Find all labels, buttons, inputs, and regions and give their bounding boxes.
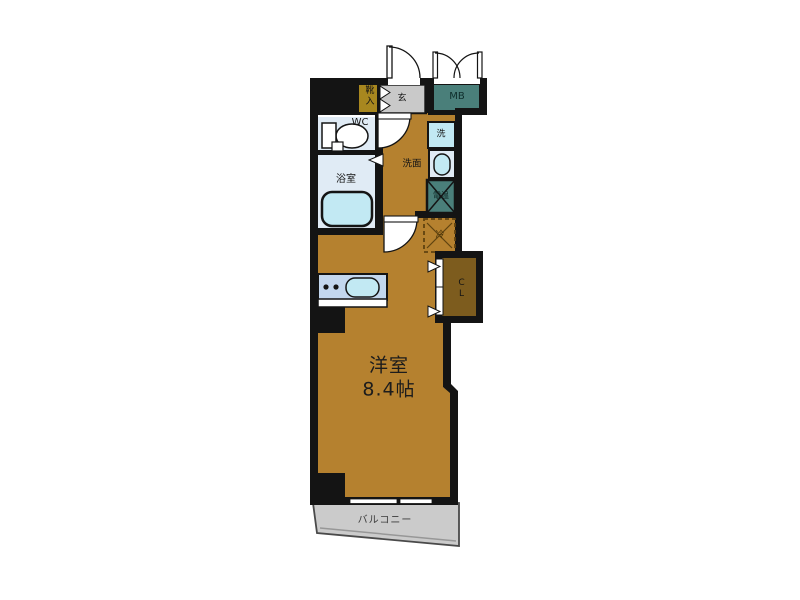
closet-label: CL xyxy=(457,278,466,300)
bathroom-label: 浴室 xyxy=(336,175,356,185)
washbasin-sink-icon xyxy=(434,154,450,175)
main-room-door-leaf xyxy=(384,216,418,222)
wall-top-left-block xyxy=(310,78,358,115)
balcony-windows xyxy=(350,499,432,504)
main-room-label: 洋室 8.4帖 xyxy=(362,354,415,402)
kitchen-counter-front xyxy=(318,299,387,307)
wall-bath-bottom xyxy=(310,228,383,235)
kitchen xyxy=(318,274,387,307)
main-room-name: 洋室 xyxy=(362,354,415,378)
stove-burner-icon xyxy=(323,284,328,289)
closet xyxy=(428,251,483,323)
washroom-label: 洗面 xyxy=(402,159,421,169)
meter-box-door-opening xyxy=(434,78,480,84)
wc-label: WC xyxy=(352,118,369,128)
meter-box-door-leaf xyxy=(478,52,483,78)
exterior-doors xyxy=(387,46,482,85)
window-opening xyxy=(350,499,397,504)
meter-box-door-leaf xyxy=(433,52,438,78)
entrance-label: 玄 xyxy=(397,95,406,104)
floorplan-page: 靴入 玄 MB WC 浴室 洗 洗面 電温 冷 CL 洋室 8.4帖 バルコニー xyxy=(0,0,800,600)
shoe-cabinet-label: 靴入 xyxy=(364,85,373,107)
bathroom xyxy=(318,154,383,228)
kitchen-sink-icon xyxy=(346,278,379,297)
wall-bottom-left-pillar xyxy=(314,473,345,499)
wall-left xyxy=(310,115,318,505)
stove-burner-icon xyxy=(333,284,338,289)
washing-machine-label: 洗 xyxy=(436,131,445,140)
wall-entrance-right xyxy=(425,78,434,113)
water-heater-label: 電温 xyxy=(433,192,449,200)
toilet-seat-icon xyxy=(332,142,343,151)
entrance-door-opening xyxy=(388,78,420,85)
window-opening xyxy=(400,499,432,504)
meter-box-door-swing-icon xyxy=(435,53,460,78)
entrance-door-swing-icon xyxy=(389,47,420,78)
washroom-door-leaf xyxy=(378,113,411,119)
meter-box-label: MB xyxy=(449,92,465,102)
main-room-size: 8.4帖 xyxy=(362,378,415,402)
floorplan-drawing xyxy=(0,0,800,600)
entrance-door-leaf xyxy=(387,46,392,78)
meter-box-door-swing-icon xyxy=(454,53,479,78)
balcony-label: バルコニー xyxy=(358,516,413,526)
refrigerator-label: 冷 xyxy=(435,232,444,241)
bathtub-icon xyxy=(322,192,372,226)
wall-wc-bath-divider xyxy=(318,150,375,155)
